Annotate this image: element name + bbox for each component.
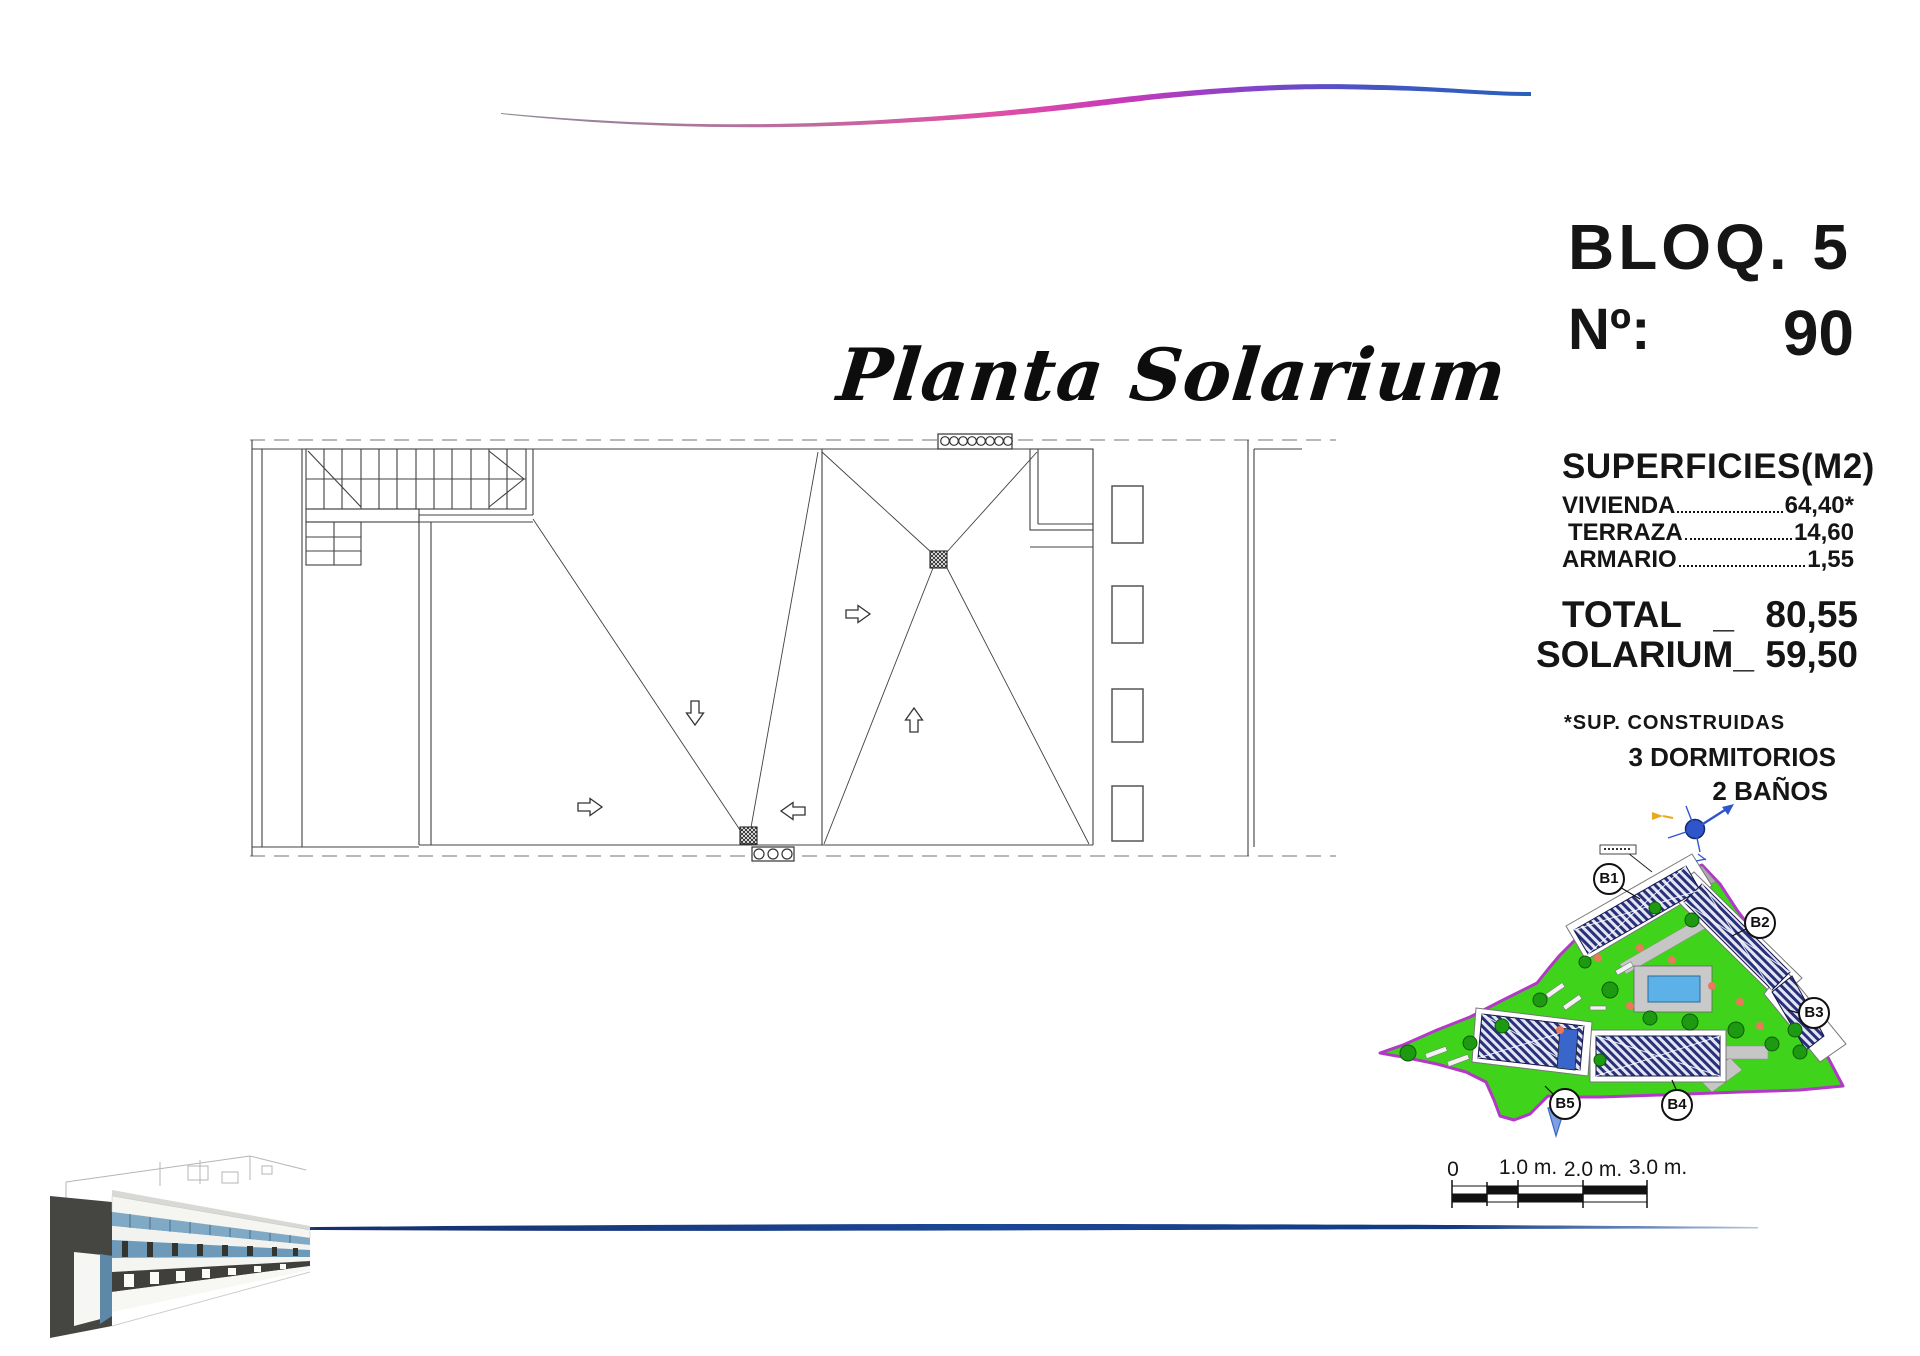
surface-value: 14,60: [1794, 519, 1854, 547]
plan-sheet: Planta Solarium BLOQ. 5 Nº: 90 SUPERFICI…: [0, 0, 1920, 1356]
roof-drain-icon: [740, 827, 757, 844]
site-badge-b2: B2: [1744, 907, 1776, 939]
roof-drain-icon: [930, 551, 947, 568]
page-title: Planta Solarium: [834, 332, 1511, 417]
slope-arrow-icons: [578, 606, 923, 820]
staircase: [306, 449, 526, 509]
surface-value: 1,55: [1807, 546, 1854, 574]
total-value: 80,55: [1765, 594, 1858, 636]
closet-grid: [306, 509, 419, 565]
bathrooms-count: 2 BAÑOS: [1560, 776, 1828, 807]
surface-value: 64,40*: [1785, 492, 1854, 520]
scale-label-2m: 2.0 m.: [1564, 1158, 1622, 1182]
scale-label-0: 0: [1447, 1158, 1459, 1182]
site-plan-map: [1380, 804, 1846, 1136]
scale-bar: [1452, 1180, 1647, 1208]
building-3d-render: [50, 1156, 310, 1338]
unit-number-value: 90: [1783, 296, 1854, 370]
solarium-label: SOLARIUM: [1536, 634, 1733, 676]
dot-leader: [1685, 538, 1792, 540]
surfaces-heading: SUPERFICIES(M2): [1562, 447, 1875, 487]
dot-leader: [1677, 511, 1782, 513]
service-box: [1557, 1028, 1578, 1070]
surface-label: VIVIENDA: [1562, 492, 1675, 520]
plan-boundary-dashed: [250, 440, 1336, 856]
site-badge-b1: B1: [1593, 863, 1625, 895]
solarium-value: 59,50: [1765, 634, 1858, 676]
scale-label-1m: 1.0 m.: [1499, 1156, 1557, 1180]
drawing-layer: [0, 0, 1920, 1356]
compass-icon: [1652, 804, 1734, 861]
dot-leader: [1679, 565, 1806, 567]
surfaces-table: VIVIENDA 64,40* TERRAZA 14,60 ARMARIO 1,…: [1562, 492, 1854, 573]
bedrooms-count: 3 DORMITORIOS: [1560, 742, 1836, 773]
site-badge-b4: B4: [1661, 1089, 1693, 1121]
floor-plan-drawing: [250, 434, 1336, 861]
total-row: TOTAL _ 80,55: [1562, 594, 1858, 636]
site-badge-b3: B3: [1798, 997, 1830, 1029]
site-badge-b5: B5: [1549, 1088, 1581, 1120]
bottom-line-decoration: [230, 1224, 1758, 1231]
solarium-row: SOLARIUM _ 59,50: [1536, 634, 1858, 676]
surface-row: TERRAZA 14,60: [1562, 519, 1854, 546]
surface-label: TERRAZA: [1568, 519, 1683, 547]
swimming-pool: [1648, 976, 1700, 1002]
total-separator: _: [1713, 594, 1734, 636]
total-label: TOTAL: [1562, 594, 1682, 636]
planter-boxes: [1112, 486, 1143, 841]
top-wave-decoration: [501, 84, 1531, 127]
solarium-separator: _: [1733, 634, 1754, 676]
surface-row: VIVIENDA 64,40*: [1562, 492, 1854, 519]
surfaces-footnote: *SUP. CONSTRUIDAS: [1564, 712, 1785, 735]
vent-strip: [752, 434, 1012, 861]
surface-label: ARMARIO: [1562, 546, 1677, 574]
surface-row: ARMARIO 1,55: [1562, 546, 1854, 573]
block-title: BLOQ. 5: [1545, 210, 1875, 284]
scale-label-3m: 3.0 m.: [1629, 1156, 1687, 1180]
stair-bulkhead: [1030, 449, 1093, 547]
unit-number-label: Nº:: [1568, 296, 1650, 363]
unit-number-row: Nº: 90: [1568, 296, 1868, 370]
rooms-summary: 3 DORMITORIOS 2 BAÑOS: [1560, 742, 1836, 807]
roof-slope-lines: [533, 452, 1089, 844]
